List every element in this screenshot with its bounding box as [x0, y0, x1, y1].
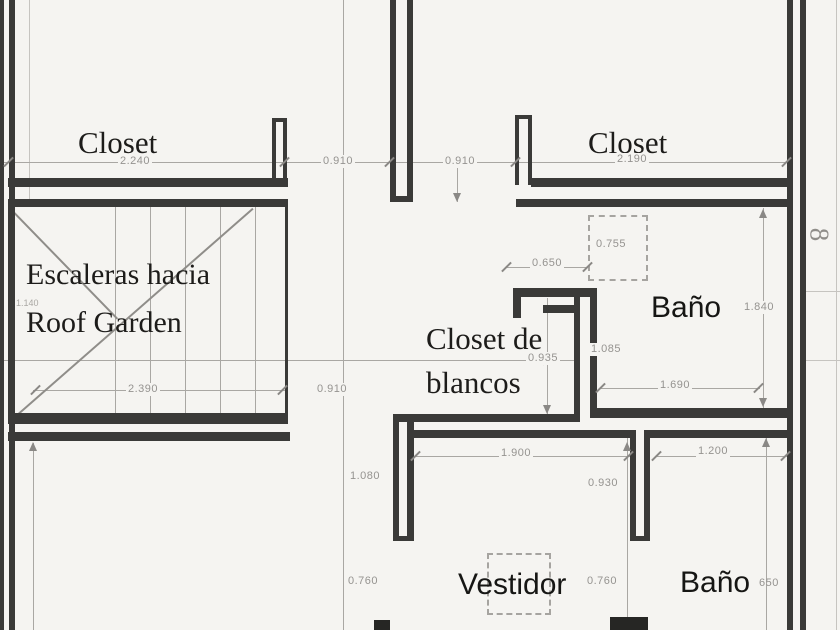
fixture-cut-bottom [374, 620, 390, 630]
ref-line-vertical-left-inner [29, 0, 30, 202]
wall-bano-left [574, 288, 580, 418]
dim-label-2390: 2.390 [126, 383, 160, 396]
dim-extension-vestidor [627, 437, 628, 630]
wall-closet-blancos-stub [513, 288, 521, 318]
dim-arrow [623, 442, 631, 451]
dim-label-0930: 0.930 [586, 477, 620, 490]
wall-closet-left-stub [272, 118, 287, 184]
dim-label-1690: 1.690 [658, 379, 692, 392]
dim-label-1840: 1.840 [742, 301, 776, 314]
wall-vestidor-bano-stub [644, 430, 650, 541]
wall-vestidor-left [393, 414, 399, 541]
dim-label-650-right: 650 [757, 577, 781, 590]
room-label-vestidor: Vestidor [458, 568, 566, 601]
dim-label-1900: 1.900 [499, 447, 533, 460]
dim-label-0910-mid: 0.910 [315, 383, 349, 396]
dim-label-0935: 0.935 [526, 352, 560, 365]
wall-center-partition-cap [390, 196, 413, 202]
ref-line-upper-right-margin [806, 291, 840, 292]
dim-label-1140: 1.140 [14, 297, 41, 310]
wall-closet-blancos-inner [543, 305, 577, 313]
ref-line-mid-right-margin [806, 360, 840, 361]
room-label-stairs-line1: Escaleras hacia [26, 258, 210, 292]
wall-right-outer [787, 0, 793, 630]
dim-extension-bano-lower [766, 437, 767, 630]
wall-center-partition [390, 0, 396, 202]
dim-label-1200: 1.200 [696, 445, 730, 458]
dim-arrow [762, 438, 770, 447]
wall-middle-horizontal [395, 414, 580, 422]
ref-line-vertical-right-edge [836, 0, 837, 630]
wall-bano-bottom [590, 408, 793, 418]
dim-arrow [453, 193, 461, 202]
room-label-bano-upper: Baño [651, 291, 721, 324]
dim-label-0760-left: 0.760 [346, 575, 380, 588]
room-label-bano-lower: Baño [680, 566, 750, 599]
wall-center-partition [407, 0, 413, 202]
wall-closet-right [531, 178, 789, 187]
wall-closet-blancos-top [513, 288, 593, 297]
dim-label-0910-top-right: 0.910 [443, 155, 477, 168]
dim-extension-bottom-left [33, 443, 34, 630]
room-label-closet-blancos-line1: Closet de [426, 322, 542, 356]
wall-closet-left [8, 178, 288, 187]
wall-closet-right-lower [516, 199, 792, 207]
dim-arrow [543, 405, 551, 414]
wall-bottom-rooms-top [408, 430, 633, 438]
wall-right-outer [800, 0, 806, 630]
wall-bottom-left-room-top [8, 432, 290, 441]
dim-arrow [29, 442, 37, 451]
floor-plan: Closet Closet Escaleras hacia Roof Garde… [0, 0, 840, 630]
wall-left-outer [0, 0, 4, 630]
ref-line-vertical-center [343, 0, 344, 630]
wall-vestidor-left-cap [393, 536, 414, 541]
wall-vestidor-bano-stub-cap [630, 536, 650, 541]
dim-label-1085: 1.085 [589, 343, 623, 356]
dim-label-0760-mid: 0.760 [585, 575, 619, 588]
dim-arrow [759, 398, 767, 407]
fixture-cut-bottom [610, 617, 648, 630]
dim-label-0755: 0.755 [594, 238, 628, 251]
wall-bottom-rooms-top [648, 430, 793, 438]
dim-label-0910-top-left: 0.910 [321, 155, 355, 168]
room-label-stairs-line2: Roof Garden [26, 306, 182, 340]
wall-closet-right-stub [515, 115, 532, 185]
dim-label-1080: 1.080 [348, 470, 382, 483]
dim-label-2190: 2.190 [615, 153, 649, 166]
dim-label-0650: 0.650 [530, 257, 564, 270]
dim-label-edge-8: 8 [803, 228, 834, 242]
dim-label-2240: 2.240 [118, 155, 152, 168]
room-label-closet-blancos-line2: blancos [426, 366, 521, 400]
dim-arrow [759, 209, 767, 218]
